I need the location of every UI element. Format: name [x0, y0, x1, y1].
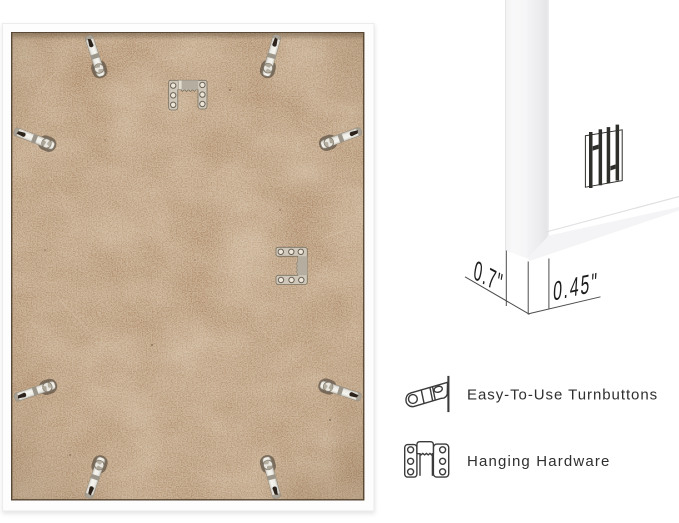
- svg-text:0.45": 0.45": [552, 267, 599, 307]
- svg-text:0.7": 0.7": [472, 254, 506, 299]
- svg-text:Easy-To-Use Turnbuttons: Easy-To-Use Turnbuttons: [467, 387, 658, 404]
- svg-text:Hanging Hardware: Hanging Hardware: [467, 453, 610, 470]
